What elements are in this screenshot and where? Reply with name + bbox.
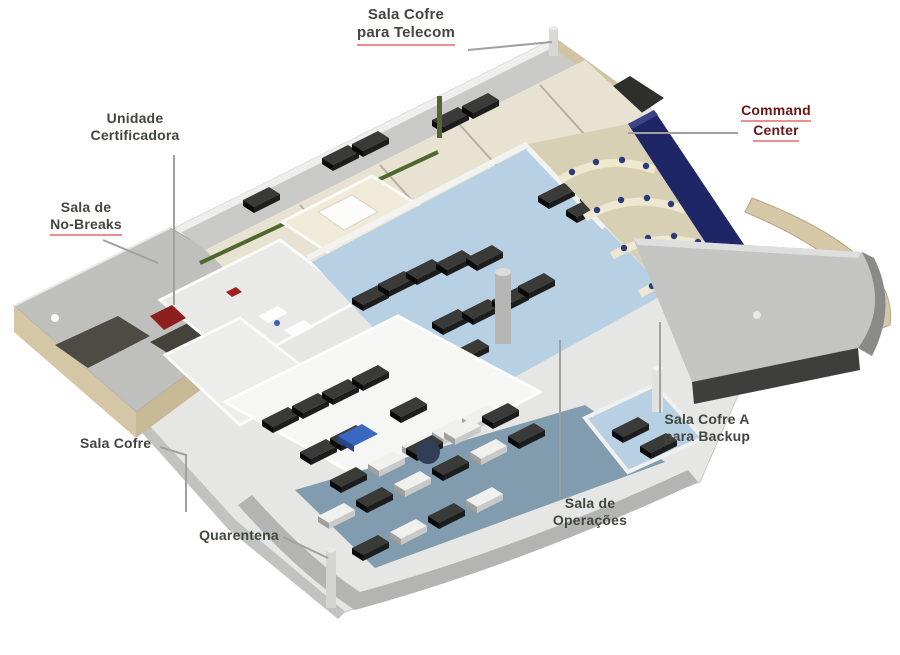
label-sala-cofre-a: Sala Cofre A para Backup: [642, 411, 772, 445]
label-line: No-Breaks: [50, 216, 122, 236]
label-line: Operações: [553, 512, 627, 529]
label-line: Quarentena: [199, 527, 279, 544]
label-line: Center: [753, 122, 799, 142]
label-sala-operacoes: Sala de Operações: [530, 495, 650, 529]
label-sala-cofre-telecom: Sala Cofre para Telecom: [336, 6, 476, 46]
label-line: Sala Cofre: [368, 6, 444, 24]
label-line: Command: [741, 102, 811, 122]
label-quarentena: Quarentena: [183, 527, 295, 544]
label-line: Certificadora: [91, 127, 180, 144]
label-line: Sala de: [565, 495, 615, 512]
label-sala-cofre: Sala Cofre: [80, 435, 180, 452]
label-sala-no-breaks: Sala de No-Breaks: [30, 199, 142, 236]
label-line: Unidade: [107, 110, 164, 127]
corner-pillar: [549, 26, 558, 56]
label-command-center: Command Center: [722, 102, 830, 142]
label-unidade-certificadora: Unidade Certificadora: [70, 110, 200, 144]
floorplan-figure: Sala Cofre para Telecom Unidade Certific…: [0, 0, 900, 655]
floorplan-illustration: [0, 0, 900, 655]
label-line: Sala Cofre A: [664, 411, 749, 428]
label-line: Sala de: [61, 199, 111, 216]
label-line: Sala Cofre: [80, 435, 151, 452]
label-line: para Telecom: [357, 24, 455, 45]
label-line: para Backup: [664, 428, 750, 445]
